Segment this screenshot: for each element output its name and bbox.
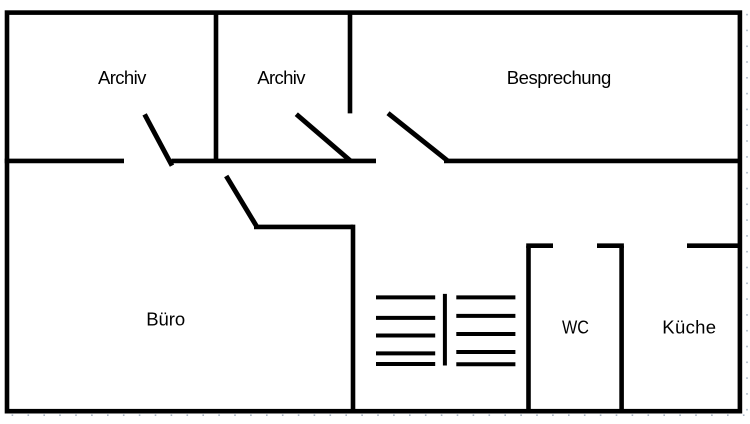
svg-text:WC: WC	[562, 316, 589, 337]
svg-text:Archiv: Archiv	[98, 67, 147, 88]
svg-text:Büro: Büro	[146, 309, 185, 330]
svg-text:Besprechung: Besprechung	[507, 67, 612, 88]
svg-text:Küche: Küche	[662, 316, 716, 337]
svg-text:Archiv: Archiv	[257, 67, 306, 88]
